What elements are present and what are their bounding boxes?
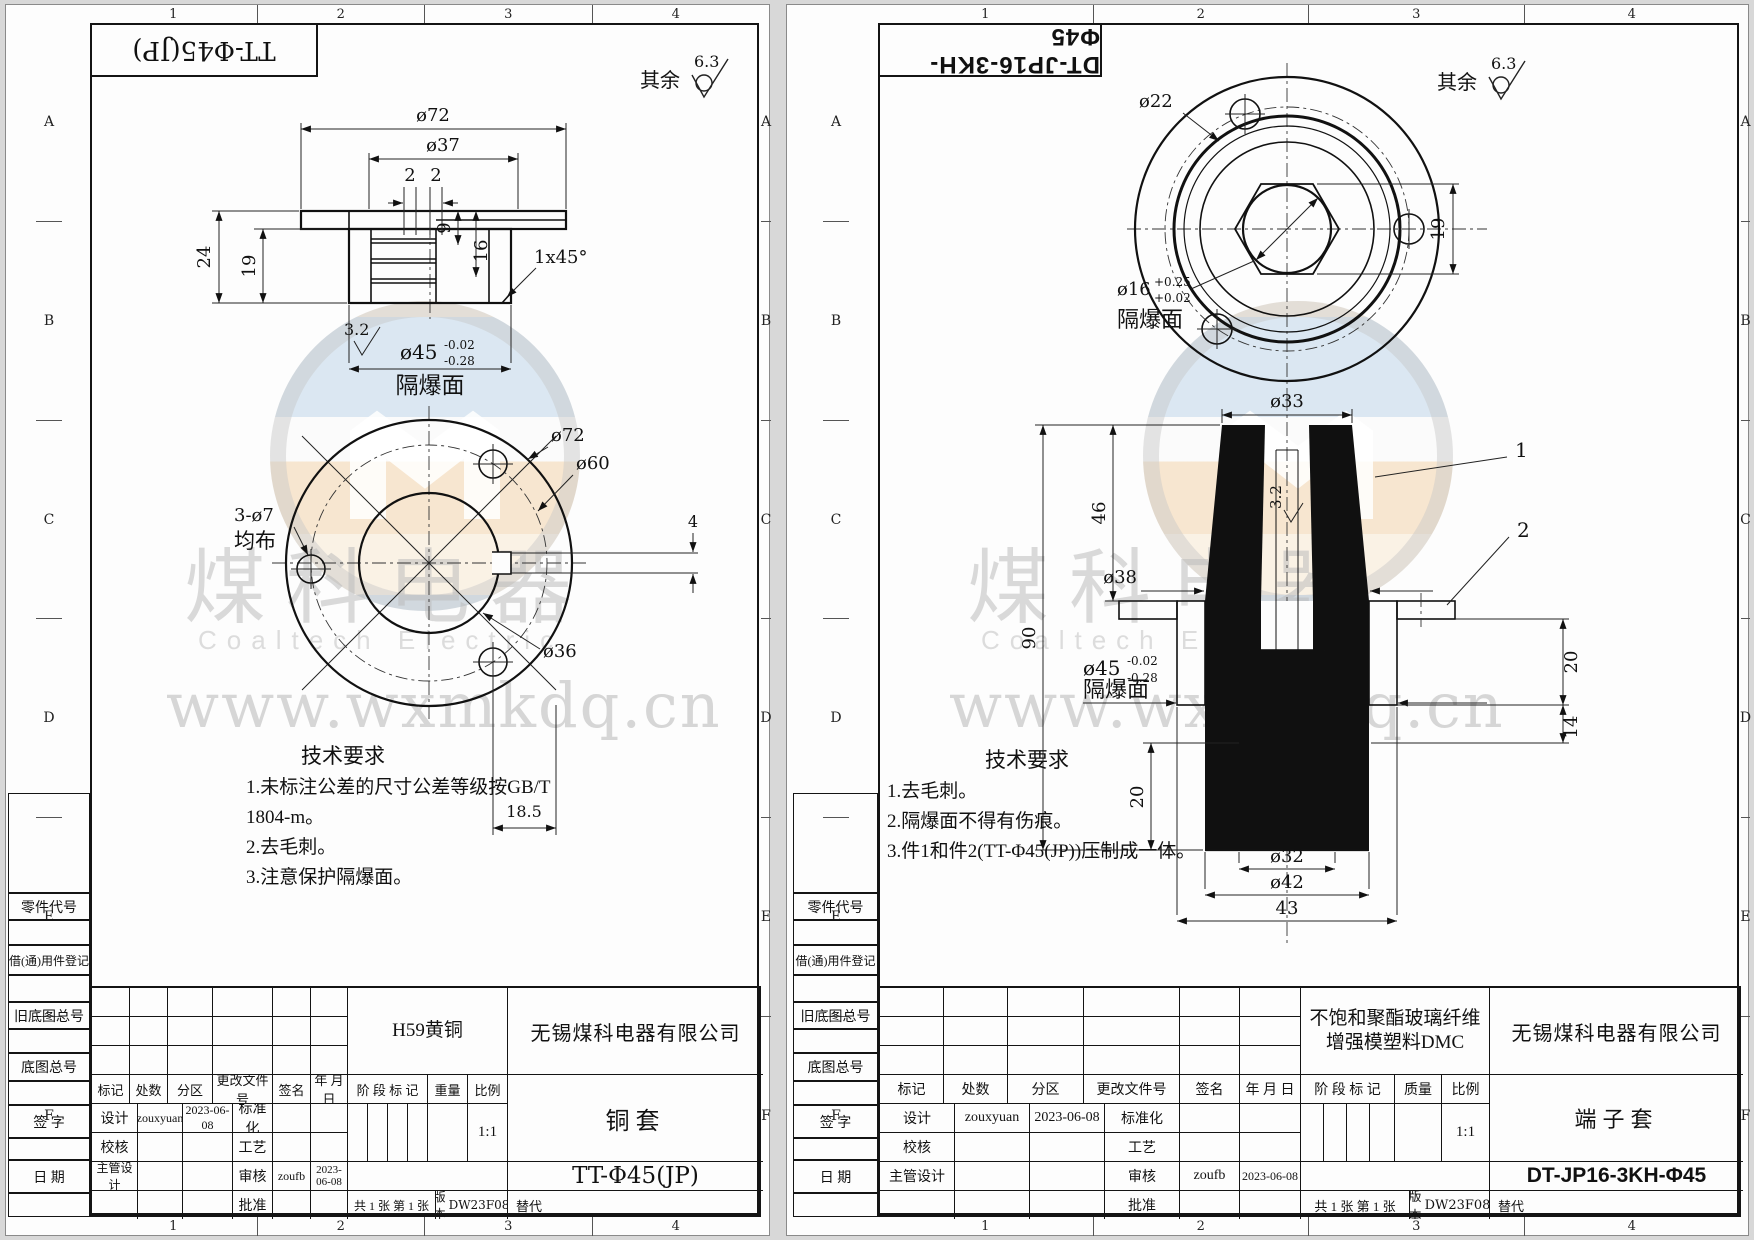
margin-box-date: 日 期 — [793, 1160, 878, 1193]
title-block: 标记 处数 分区 更改文件号 签名 年 月 日 设计 zouxyuan 2023… — [878, 986, 1741, 1217]
dim-fv-h24: 24 — [194, 246, 215, 269]
label-sv-flameproof: 隔爆面 — [1083, 677, 1149, 702]
dim-sv-d38: ø38 — [1103, 567, 1137, 588]
dim-cv-d22: ø22 — [1139, 91, 1173, 112]
tb-audit: 审核 — [1105, 1162, 1180, 1191]
tb-version-label: 版本 — [436, 1191, 446, 1219]
dim-sv-h14: 14 — [1561, 716, 1582, 739]
tb-scale-value: 1:1 — [1442, 1104, 1490, 1162]
stamp-drawing-no: TT-Φ45(JP) — [90, 23, 318, 77]
dim-fv-d45: ø45 — [400, 340, 438, 364]
tb-h-zone: 分区 — [168, 1075, 213, 1104]
tb-sheets: 共 1 张 第 1 张 — [348, 1191, 436, 1219]
tb-h-mark: 标记 — [92, 1075, 130, 1104]
tb-standardize: 标准化 — [1105, 1104, 1180, 1133]
margin-box-sign: 签 字 — [793, 1105, 878, 1138]
dim-fv-d45-dn: -0.28 — [444, 354, 475, 368]
dim-fv-d9: 9 — [434, 222, 455, 233]
tb-approve: 批准 — [1105, 1191, 1180, 1219]
top-circular-view: ø22 ø16 +0.25 +0.02 隔爆面 19 — [1117, 63, 1487, 401]
dim-fv-d37: ø37 — [426, 135, 460, 156]
tb-version-label: 版本 — [1410, 1191, 1422, 1219]
tb-material-line1: H59黄铜 — [392, 1019, 463, 1043]
tb-auditor: zoufb — [273, 1162, 311, 1191]
dim-sv-h90: 90 — [1019, 627, 1040, 650]
tech-item: 1.去毛刺。 — [887, 777, 1327, 807]
dim-cv-d16: ø16 — [1117, 279, 1151, 300]
dim-sv-h20r: 20 — [1561, 651, 1582, 674]
dim-sv-d42: ø42 — [1270, 872, 1304, 893]
tech-item: 1.未标注公差的尺寸公差等级按GB/T 1804-m。 — [246, 773, 596, 833]
balloon-1: 1 — [1515, 438, 1528, 462]
margin-box-part-code: 零件代号 — [8, 893, 90, 920]
margin-box-old-no: 旧底图总号 — [8, 1002, 90, 1029]
margin-box-blank — [793, 1138, 878, 1160]
margin-box-blank — [8, 1081, 90, 1105]
tb-h-change: 更改文件号 — [213, 1075, 273, 1104]
margin-box-blank — [8, 1029, 90, 1053]
margin-box-base-no: 底图总号 — [793, 1053, 878, 1081]
dim-fv-d72: ø72 — [416, 105, 450, 126]
label-fv-flameproof: 隔爆面 — [396, 373, 465, 398]
dim-bv-even: 均布 — [234, 529, 276, 553]
tb-company: 无锡煤科电器有限公司 — [1490, 988, 1743, 1075]
margin-box-blank — [8, 1193, 90, 1217]
tb-approve: 批准 — [233, 1191, 273, 1219]
tb-check: 校核 — [880, 1133, 955, 1162]
title-block: 标记 处数 分区 更改文件号 签名 年 月 日 设计 zouxyuan 2023… — [90, 986, 761, 1217]
tb-design: 设计 — [92, 1104, 138, 1133]
margin-box-blank — [793, 1029, 878, 1053]
front-section-view: ø72 ø37 2 2 24 19 9 16 1x45° — [194, 105, 588, 398]
tb-standardize: 标准化 — [233, 1104, 273, 1133]
tb-designer: zouxyuan — [138, 1104, 183, 1133]
dim-sv-h46: 46 — [1089, 502, 1110, 525]
tech-title: 技术要求 — [985, 745, 1327, 775]
margin-box-part-code: 零件代号 — [793, 893, 878, 920]
tb-material-box: 不饱和聚酯玻璃纤维 增强模塑料DMC — [1301, 988, 1490, 1075]
tb-h-count: 处数 — [944, 1075, 1008, 1104]
tb-part-name: 端子套 — [1490, 1075, 1743, 1162]
tb-material-line2: 增强模塑料DMC — [1326, 1031, 1464, 1055]
margin-box-borrow: 借(通)用件登记 — [793, 945, 878, 975]
tb-material-line1: 不饱和聚酯玻璃纤维 — [1309, 1007, 1480, 1031]
tb-design-date: 2023-06-08 — [1030, 1104, 1105, 1133]
tech-item: 2.隔爆面不得有伤痕。 — [887, 807, 1327, 837]
margin-box-old-no: 旧底图总号 — [793, 1002, 878, 1029]
tech-item: 3.件1和件2(TT-Φ45(JP))压制成一体。 — [887, 837, 1327, 867]
dim-cv-h19: 19 — [1428, 218, 1449, 241]
sheet-right: 煤科电器 Coaltech Electric www.wxmkdq.cn 1 2… — [786, 4, 1749, 1236]
roughness-note: 其余 6.3 — [638, 51, 750, 105]
tb-stage-label: 阶 段 标 记 — [1301, 1075, 1395, 1104]
tb-h-zone: 分区 — [1008, 1075, 1084, 1104]
tb-material-box: H59黄铜 — [348, 988, 508, 1075]
dim-fv-d16: 16 — [471, 240, 492, 263]
margin-box-borrow: 借(通)用件登记 — [8, 945, 90, 975]
tb-replace: 替代 — [1490, 1191, 1743, 1219]
tb-replace: 替代 — [508, 1191, 763, 1219]
dim-sv-d33: ø33 — [1270, 391, 1304, 412]
stamp-drawing-no: DT-JP16-3KH-Φ45 — [878, 23, 1102, 77]
tb-version-box: 版本 DW23F08 — [1410, 1191, 1490, 1219]
dim-fv-chamfer: 1x45° — [534, 247, 588, 268]
tb-audit-date: 2023-06-08 — [311, 1162, 348, 1191]
tb-h-change: 更改文件号 — [1084, 1075, 1180, 1104]
dim-fv-d45-up: -0.02 — [444, 338, 475, 352]
margin-box-date: 日 期 — [8, 1160, 90, 1193]
margin-box-blank — [793, 1081, 878, 1105]
tb-audit: 审核 — [233, 1162, 273, 1191]
dim-fv-groove1: 2 — [404, 165, 415, 186]
margin-box-blank — [8, 1138, 90, 1160]
tb-weight-label: 重量 — [428, 1075, 468, 1104]
tb-scale-value: 1:1 — [468, 1104, 508, 1162]
stamp-text: TT-Φ45(JP) — [132, 35, 275, 65]
stamp-text: DT-JP16-3KH-Φ45 — [880, 22, 1100, 78]
tb-scale-label: 比例 — [468, 1075, 508, 1104]
margin-box-blank — [8, 975, 90, 1002]
dim-fv-h19: 19 — [239, 255, 260, 278]
margin-box-blank — [793, 1193, 878, 1217]
tb-part-name: 铜套 — [508, 1075, 763, 1162]
tb-version-value: DW23F08 — [449, 1198, 508, 1212]
tech-item: 2.去毛刺。 — [246, 833, 596, 863]
roughness-rest-label: 其余 — [640, 69, 680, 92]
balloon-2: 2 — [1517, 518, 1530, 542]
tech-title: 技术要求 — [301, 741, 596, 771]
dim-sv-d45-up: -0.02 — [1127, 654, 1158, 668]
tb-h-mark: 标记 — [880, 1075, 944, 1104]
dim-bv-d60: ø60 — [576, 453, 610, 474]
tb-h-count: 处数 — [130, 1075, 168, 1104]
tb-company: 无锡煤科电器有限公司 — [508, 988, 763, 1075]
tb-process: 工艺 — [233, 1133, 273, 1162]
tb-version-box: 版本 DW23F08 — [436, 1191, 508, 1219]
roughness-note: 其余 6.3 — [1435, 53, 1547, 107]
tb-drawing-no: DT-JP16-3KH-Φ45 — [1490, 1162, 1743, 1191]
tech-requirements: 技术要求 1.去毛刺。 2.隔爆面不得有伤痕。 3.件1和件2(TT-Φ45(J… — [887, 745, 1327, 867]
margin-box-base-no: 底图总号 — [8, 1053, 90, 1081]
tb-process: 工艺 — [1105, 1133, 1180, 1162]
tb-chief-design: 主管设计 — [880, 1162, 955, 1191]
tb-auditor: zoufb — [1180, 1162, 1240, 1191]
tb-design: 设计 — [880, 1104, 955, 1133]
tech-item: 3.注意保护隔爆面。 — [246, 863, 596, 893]
tb-weight-label: 质量 — [1395, 1075, 1442, 1104]
roughness-value: 6.3 — [694, 52, 719, 71]
dim-fv-rough: 3.2 — [344, 320, 369, 339]
tb-design-date: 2023-06-08 — [183, 1104, 233, 1133]
dim-sv-rough: 3.2 — [1267, 485, 1285, 509]
sheet-left: 煤科电器 Coaltech Electric www.wxmkdq.cn 1 2… — [5, 4, 770, 1236]
tb-designer: zouxyuan — [955, 1104, 1030, 1133]
dim-bv-holes: 3-ø7 — [234, 505, 274, 526]
tb-version-value: DW23F08 — [1425, 1198, 1490, 1213]
dim-sv-w43: 43 — [1276, 898, 1299, 919]
tb-h-sign: 签名 — [1180, 1075, 1240, 1104]
label-cv-flameproof: 隔爆面 — [1117, 307, 1183, 332]
roughness-rest-label: 其余 — [1437, 71, 1477, 94]
tb-check: 校核 — [92, 1133, 138, 1162]
tb-scale-label: 比例 — [1442, 1075, 1490, 1104]
tb-drawing-no: TT-Φ45(JP) — [508, 1162, 763, 1191]
dim-cv-d16-dn: +0.02 — [1154, 291, 1191, 305]
dim-bv-key: 4 — [688, 512, 698, 531]
margin-box-sign: 签 字 — [8, 1105, 90, 1138]
tech-requirements: 技术要求 1.未标注公差的尺寸公差等级按GB/T 1804-m。 2.去毛刺。 … — [246, 741, 596, 893]
dim-bv-d72: ø72 — [551, 425, 585, 446]
margin-box-blank — [8, 793, 90, 893]
margin-box-blank — [793, 920, 878, 945]
roughness-value: 6.3 — [1491, 54, 1516, 73]
dim-bv-d36: ø36 — [543, 641, 577, 662]
dim-fv-groove2: 2 — [430, 165, 441, 186]
tb-h-sign: 签名 — [273, 1075, 311, 1104]
tb-sheets: 共 1 张 第 1 张 — [1301, 1191, 1410, 1219]
dim-cv-d16-up: +0.25 — [1154, 275, 1191, 289]
tb-chief-design: 主管设计 — [92, 1162, 138, 1191]
margin-box-blank — [8, 920, 90, 945]
tb-h-date: 年 月 日 — [1240, 1075, 1301, 1104]
margin-box-blank — [793, 793, 878, 893]
tb-h-date: 年 月 日 — [311, 1075, 348, 1104]
tb-audit-date: 2023-06-08 — [1240, 1162, 1301, 1191]
tb-stage-label: 阶 段 标 记 — [348, 1075, 428, 1104]
margin-box-blank — [793, 975, 878, 1002]
blueprint-page: 煤科电器 Coaltech Electric www.wxmkdq.cn 1 2… — [0, 0, 1754, 1240]
